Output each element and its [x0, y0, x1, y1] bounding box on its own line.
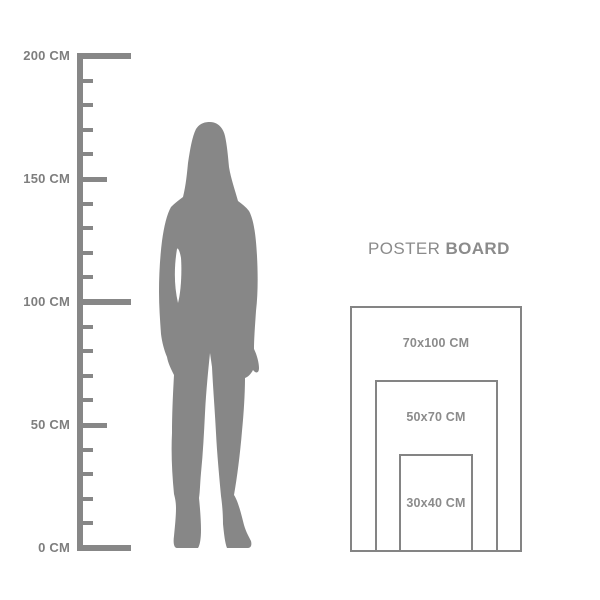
poster-size-label-50x70: 50x70 CM — [366, 409, 506, 425]
ruler-tick-120cm — [77, 251, 93, 255]
ruler-tick-90cm — [77, 325, 93, 329]
ruler-tick-150cm — [77, 177, 107, 182]
ruler-tick-10cm — [77, 521, 93, 525]
ruler-tick-160cm — [77, 152, 93, 156]
ruler-label-150cm: 150 CM — [0, 170, 70, 188]
ruler-label-0cm: 0 CM — [0, 539, 70, 557]
ruler-tick-100cm — [77, 299, 131, 305]
poster-size-label-70x100: 70x100 CM — [366, 335, 506, 351]
ruler-tick-80cm — [77, 349, 93, 353]
ruler-label-200cm: 200 CM — [0, 47, 70, 65]
ruler-tick-60cm — [77, 398, 93, 402]
ruler-tick-170cm — [77, 128, 93, 132]
ruler-tick-20cm — [77, 497, 93, 501]
ruler-tick-110cm — [77, 275, 93, 279]
height-ruler: 0 CM50 CM100 CM150 CM200 CM — [0, 0, 160, 600]
title-word-poster: POSTER — [368, 239, 440, 258]
ruler-label-50cm: 50 CM — [0, 416, 70, 434]
title-word-board: BOARD — [445, 239, 509, 258]
poster-size-label-30x40: 30x40 CM — [366, 495, 506, 511]
ruler-tick-130cm — [77, 226, 93, 230]
ruler-tick-0cm — [77, 545, 131, 551]
ruler-label-100cm: 100 CM — [0, 293, 70, 311]
ruler-tick-30cm — [77, 472, 93, 476]
ruler-tick-40cm — [77, 448, 93, 452]
ruler-tick-180cm — [77, 103, 93, 107]
ruler-tick-70cm — [77, 374, 93, 378]
ruler-tick-140cm — [77, 202, 93, 206]
ruler-tick-200cm — [77, 53, 131, 59]
woman-silhouette-icon — [158, 122, 260, 550]
poster-board-title: POSTER BOARD — [368, 239, 510, 259]
poster-size-guide: 0 CM50 CM100 CM150 CM200 CM POSTER BOARD… — [0, 0, 600, 600]
ruler-tick-190cm — [77, 79, 93, 83]
ruler-tick-50cm — [77, 423, 107, 428]
